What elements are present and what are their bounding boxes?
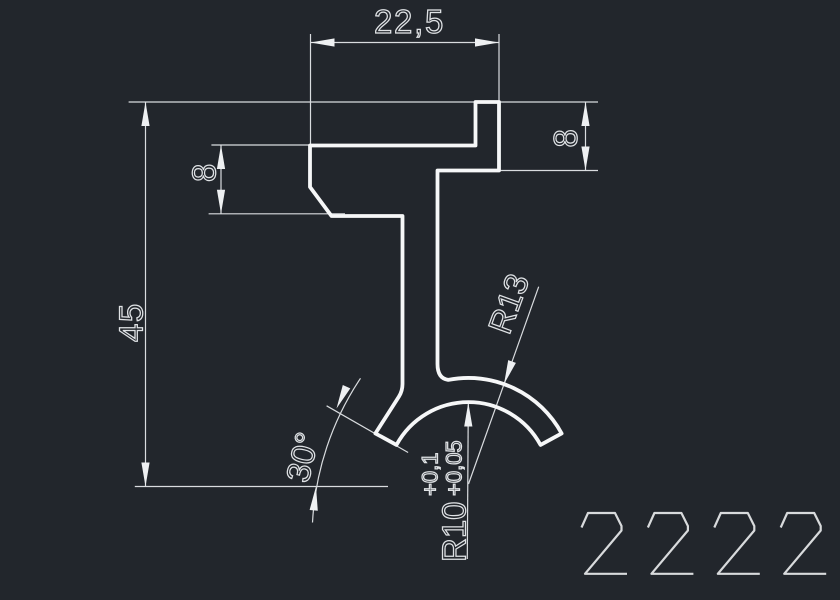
svg-text:R10: R10 <box>436 501 473 562</box>
svg-text:22,5: 22,5 <box>374 3 445 40</box>
svg-text:+0,1: +0,1 <box>418 453 443 496</box>
svg-text:8: 8 <box>186 164 223 182</box>
svg-text:+0,05: +0,05 <box>442 440 467 496</box>
svg-text:45: 45 <box>113 302 150 342</box>
svg-text:8: 8 <box>547 129 584 147</box>
